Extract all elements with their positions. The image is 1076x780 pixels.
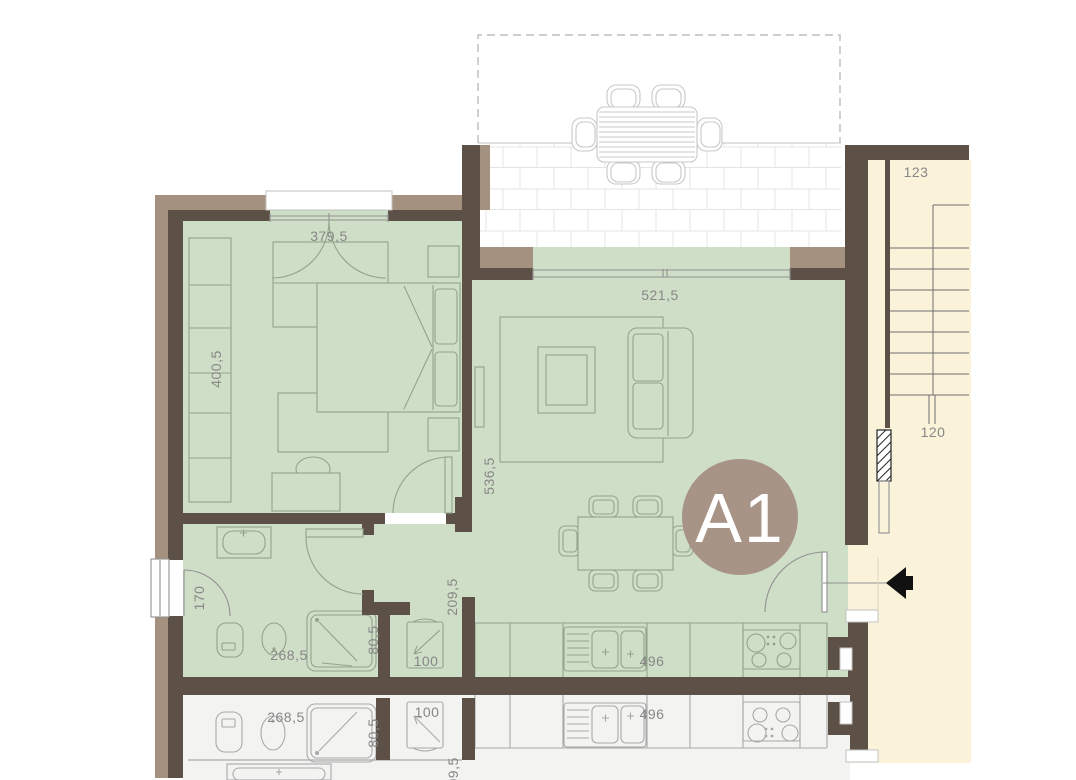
- lower-dim-kitchen-run: 496: [640, 706, 665, 722]
- dining-chair: [633, 570, 662, 591]
- terrace: [478, 35, 841, 247]
- wall-bathroom-north: [183, 513, 385, 524]
- wall-bath-door-stub-bottom: [362, 590, 374, 602]
- wall-north-staircase: [845, 145, 969, 160]
- floor-plan: 379,5 400,5 521,5 536,5 209,5 170 268,5 …: [0, 0, 1076, 780]
- lower-dim-washer-width: 100: [415, 704, 440, 720]
- unit-badge: A1: [682, 459, 798, 575]
- dim-bedroom-door-width: 379,5: [310, 228, 348, 244]
- unit-badge-label: A1: [695, 479, 785, 557]
- wall-window-sill-left: [480, 268, 533, 280]
- kitchen-niche: [840, 648, 852, 670]
- dim-hall-depth: 209,5: [444, 578, 460, 616]
- wall-bedroom-north-left: [168, 210, 270, 221]
- terrace-chair: [652, 85, 685, 109]
- sofa: [628, 328, 693, 438]
- window-jamb-left: [480, 247, 533, 268]
- wall-bedroom-north-right: [388, 210, 462, 221]
- dining-chair: [589, 496, 618, 517]
- wall-bath-door-stub-top: [362, 524, 374, 535]
- desk: [272, 473, 340, 511]
- window-jamb-right: [790, 247, 848, 268]
- balcony-slab: [266, 191, 392, 210]
- lower-kitchen-niche: [840, 702, 852, 724]
- dining-chair: [589, 570, 618, 591]
- lower-dim-bathroom-width: 268,5: [267, 709, 305, 725]
- party-wall: [168, 677, 868, 695]
- wall-window-sill-right: [790, 268, 848, 280]
- wall-hall-kitchen: [462, 597, 475, 677]
- wall-terrace-left: [462, 145, 480, 280]
- terrace-chair: [607, 160, 640, 184]
- wall-bedroom-door-jamb: [446, 513, 462, 524]
- terrace-table: [597, 107, 697, 162]
- lower-dim-hall-depth: 209,5: [445, 757, 461, 780]
- dim-shower-width: 80,5: [365, 625, 381, 654]
- wall-west-lower: [168, 616, 183, 778]
- stair-side-wall: [885, 160, 890, 428]
- terrace-chair: [572, 118, 597, 151]
- dining-chair: [633, 496, 662, 517]
- lower-dim-shower-width: 80,5: [365, 718, 381, 747]
- dining-chair: [559, 526, 580, 556]
- terrace-chair: [607, 85, 640, 109]
- dim-living-depth: 536,5: [481, 457, 497, 495]
- lower-unit-floor: [183, 695, 850, 780]
- floor-plan-canvas: 379,5 400,5 521,5 536,5 209,5 170 268,5 …: [0, 0, 1076, 780]
- lower-entrance-threshold: [846, 750, 878, 762]
- entrance-threshold: [846, 610, 878, 622]
- lower-wall-east: [850, 695, 868, 750]
- wall-east-upper: [845, 145, 868, 545]
- dim-kitchen-run: 496: [640, 653, 665, 669]
- double-bed: [317, 283, 460, 412]
- terrace-chair: [652, 160, 685, 184]
- wall-bath-east-horizontal: [362, 602, 410, 615]
- dim-stair-upper: 123: [904, 164, 929, 180]
- wall-west-upper: [168, 210, 183, 560]
- dim-living-width: 521,5: [641, 287, 679, 303]
- dim-bathroom-window: 170: [191, 586, 207, 611]
- nightstand: [428, 418, 459, 451]
- lower-wall-kitchen: [462, 698, 475, 760]
- terrace-wall-outer: [480, 145, 490, 197]
- dim-bedroom-depth: 400,5: [208, 350, 224, 388]
- dining-table: [578, 517, 673, 570]
- nightstand: [428, 246, 459, 277]
- dim-washer-width: 100: [414, 653, 439, 669]
- terrace-chair: [697, 118, 722, 151]
- dim-stair-lower: 120: [921, 424, 946, 440]
- dim-bathroom-width: 268,5: [270, 647, 308, 663]
- wall-west-outer: [155, 195, 168, 778]
